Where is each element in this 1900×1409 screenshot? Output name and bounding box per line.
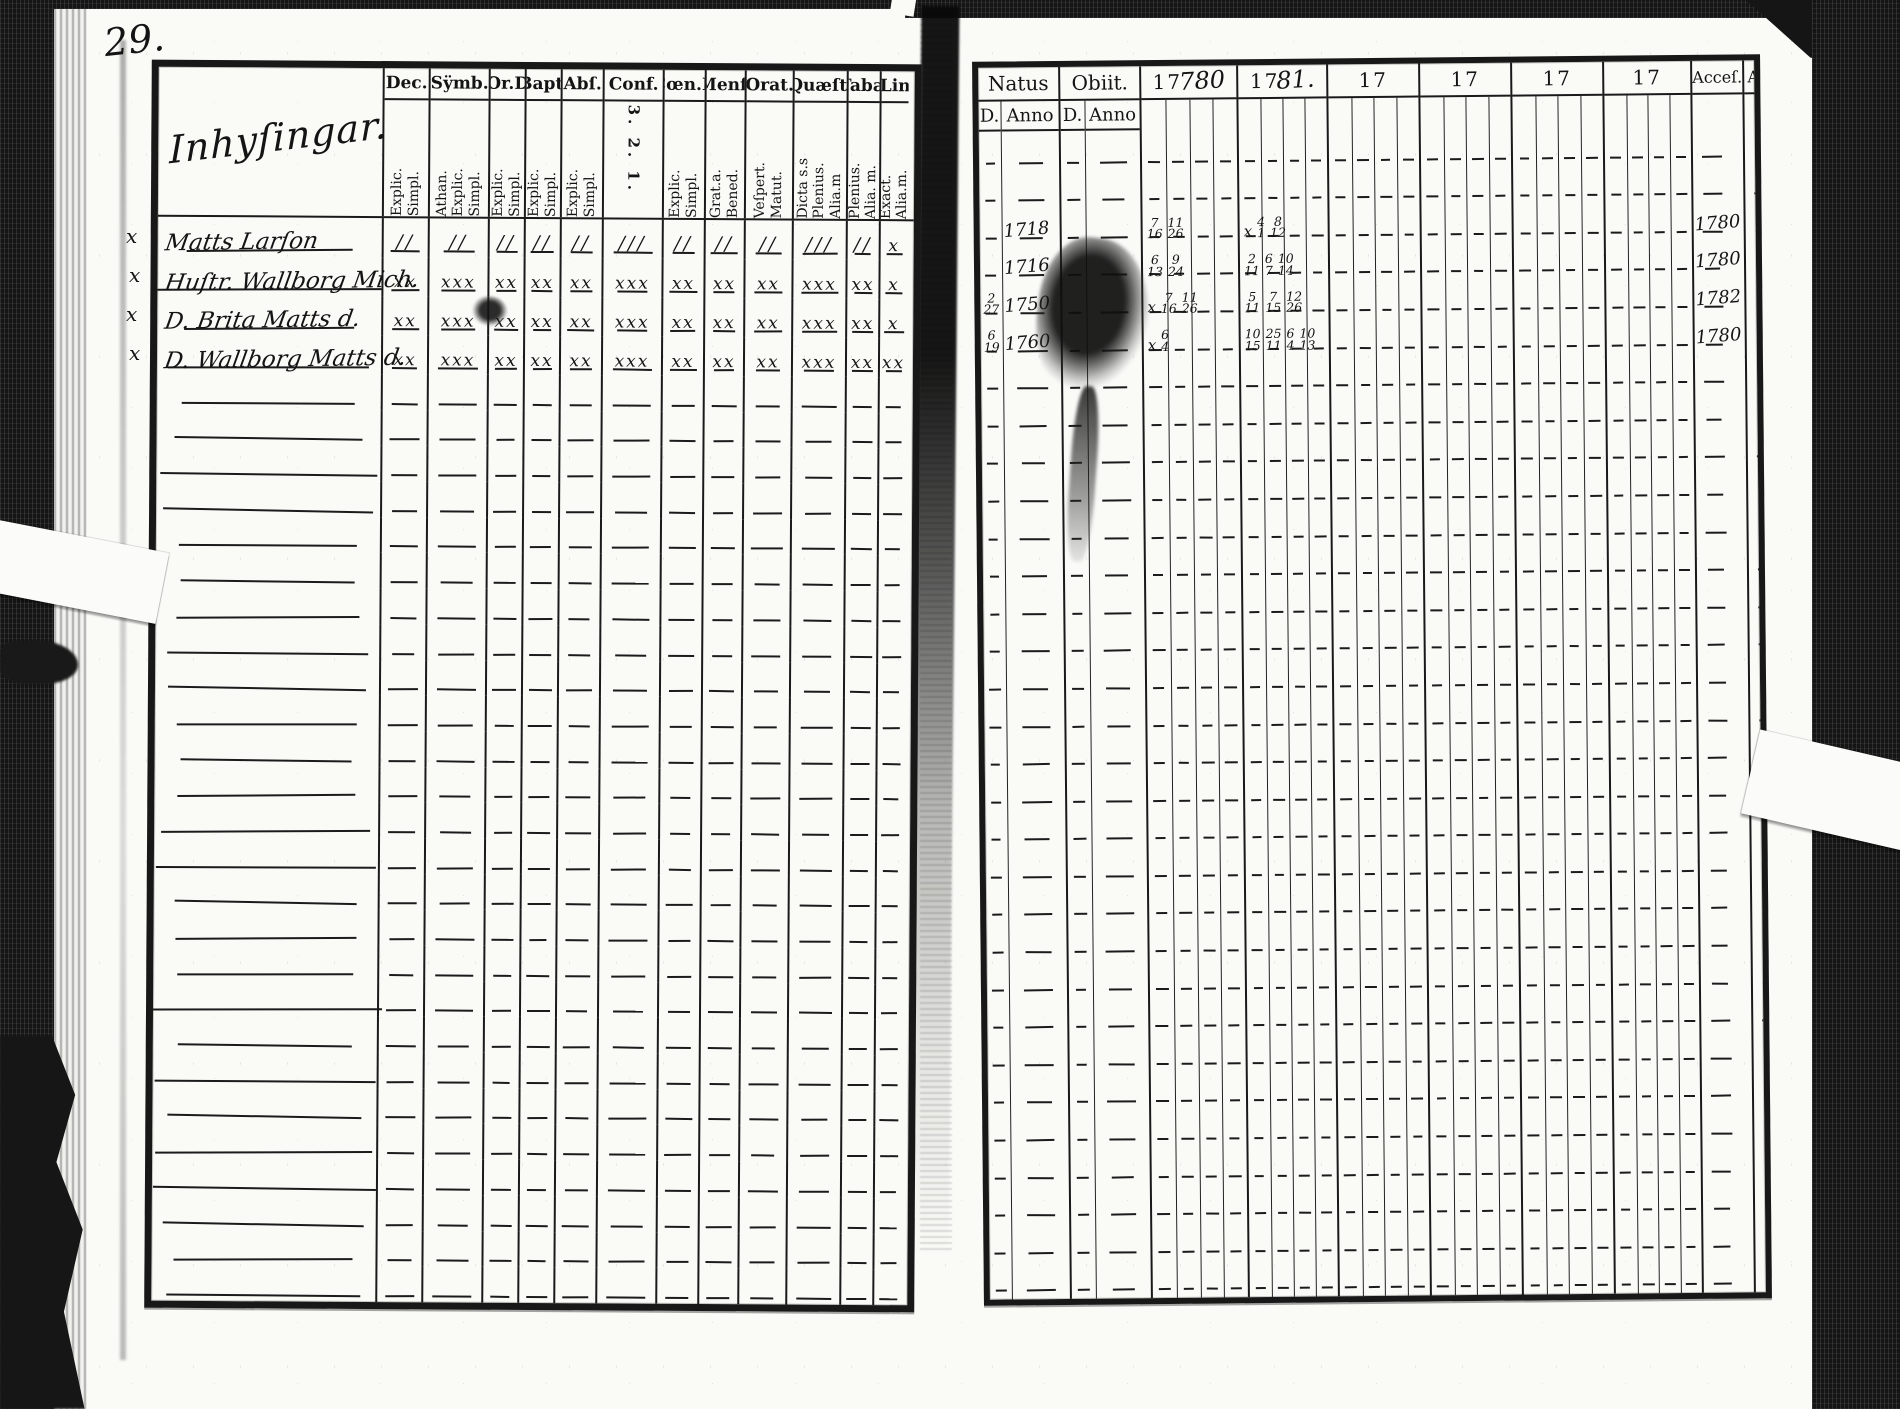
column-label: Or.D — [491, 69, 525, 101]
row-cell — [1332, 504, 1355, 542]
row-cell — [1697, 538, 1735, 576]
mark-cell — [423, 1017, 483, 1053]
mark-cell: ∕∕ — [744, 220, 792, 259]
row-cell — [1310, 580, 1331, 618]
row-cell — [1583, 351, 1605, 389]
printed-dash — [1618, 833, 1627, 835]
printed-dash — [1437, 1248, 1448, 1250]
column-label: Conf. — [605, 69, 663, 101]
printed-dash — [752, 655, 781, 657]
row-cell — [982, 470, 1004, 508]
printed-dash — [1598, 1284, 1608, 1286]
row-cell — [1151, 1107, 1175, 1145]
row-cell — [1495, 728, 1517, 766]
printed-dash — [1253, 1024, 1264, 1026]
printed-dash — [1708, 606, 1726, 608]
printed-dash — [532, 404, 551, 406]
printed-dash — [1564, 157, 1575, 159]
row-cell — [1671, 238, 1692, 276]
mark-cell — [789, 591, 843, 627]
printed-dash — [1639, 757, 1648, 759]
printed-dash — [610, 1082, 646, 1084]
printed-dash — [708, 940, 734, 943]
row-cell — [1650, 238, 1671, 276]
row-cell — [1335, 767, 1358, 805]
mark-cell — [597, 911, 657, 947]
printed-dash — [565, 975, 590, 977]
printed-dash — [1684, 1095, 1695, 1097]
printed-dash — [1340, 723, 1352, 725]
printed-dash — [1637, 607, 1647, 609]
printed-dash — [848, 1084, 869, 1086]
row-cell — [1546, 1179, 1568, 1217]
row-cell — [1474, 879, 1496, 917]
group-year-2: 1781.x4181221167101451171512261015251164… — [1236, 64, 1338, 1297]
row-cell — [1245, 768, 1267, 806]
row-cell — [1753, 989, 1772, 1027]
column-label: Sÿmb. — [431, 68, 489, 100]
mark-cell — [486, 410, 522, 446]
row-cell — [1353, 241, 1375, 279]
printed-dash — [848, 977, 869, 979]
empty-row — [152, 1086, 908, 1126]
printed-dash — [1544, 458, 1556, 460]
row-cell — [1331, 391, 1354, 429]
margin-cross-mark: x — [126, 224, 137, 248]
mark-cell — [699, 1054, 739, 1090]
printed-dash — [1705, 456, 1725, 458]
row-cell — [1677, 802, 1698, 840]
printed-dash — [1520, 157, 1529, 159]
mark-cell — [657, 1054, 699, 1090]
row-cell — [1223, 1031, 1246, 1069]
row-cell — [1151, 1145, 1175, 1183]
column-header-7: Cœn.DExplic.Simpl. — [662, 70, 705, 218]
printed-dash — [390, 545, 418, 547]
row-cell — [1168, 280, 1191, 318]
name-cell — [155, 658, 379, 695]
group-year-6: 17 — [1602, 61, 1702, 1294]
row-cell — [1696, 463, 1734, 501]
row-cell — [1497, 991, 1519, 1029]
printed-dash — [1270, 460, 1281, 462]
row-cell — [1704, 1252, 1742, 1290]
row-cell — [1514, 314, 1537, 352]
row-cell — [1567, 991, 1589, 1029]
printed-dash — [1766, 1095, 1772, 1097]
row-cell — [1584, 389, 1606, 427]
printed-dash — [1025, 1064, 1054, 1066]
mark-cell: xx — [523, 336, 559, 375]
printed-dash — [885, 442, 901, 444]
printed-dash — [705, 1261, 731, 1263]
mark-cell — [381, 374, 427, 410]
printed-dash — [1299, 1137, 1308, 1139]
printed-dash — [1454, 609, 1464, 611]
row-cell — [1540, 540, 1562, 578]
printed-dash — [1293, 610, 1304, 612]
printed-dash — [1290, 197, 1299, 199]
attendance-marks: xxx — [793, 353, 845, 373]
row-cell — [1292, 993, 1313, 1031]
printed-dash — [182, 402, 355, 405]
name-cell — [154, 801, 378, 838]
row-cell — [1561, 389, 1583, 427]
printed-dash — [1664, 1171, 1674, 1173]
printed-dash — [1637, 569, 1646, 571]
printed-dash — [1714, 1208, 1730, 1210]
printed-dash — [668, 761, 693, 763]
row-cell — [984, 733, 1006, 771]
mark-cell — [842, 805, 875, 841]
column-sublabels: Athan.Explic.Simpl. — [430, 100, 489, 216]
printed-dash — [1703, 193, 1722, 195]
printed-dash — [1156, 912, 1167, 914]
header-spacer — [1283, 99, 1304, 129]
row-cell — [1446, 353, 1468, 391]
row-cell — [1584, 464, 1606, 502]
name-cell — [153, 1015, 377, 1052]
printed-dash — [1025, 1026, 1053, 1029]
row-cell — [1382, 917, 1404, 955]
row-cell — [1651, 388, 1672, 426]
attendance-marks: ∕∕ — [664, 233, 704, 255]
mark-cell — [518, 1124, 554, 1160]
attendance-marks: xx — [383, 350, 427, 370]
printed-dash — [1389, 985, 1399, 987]
mark-cell — [875, 877, 904, 913]
printed-dash — [1504, 1097, 1514, 1099]
attendance-marks: ∕∕∕ — [794, 234, 846, 256]
row-cell — [979, 169, 1001, 207]
printed-dash — [1478, 834, 1490, 836]
printed-dash — [1544, 382, 1556, 384]
printed-dash — [1381, 158, 1390, 160]
row-cell — [1680, 1140, 1701, 1178]
printed-dash — [1461, 1286, 1471, 1288]
mark-cell — [377, 1052, 423, 1088]
mark-cell — [597, 946, 657, 982]
printed-dash — [1456, 872, 1468, 874]
row-cell — [1426, 729, 1449, 767]
printed-dash — [1589, 457, 1601, 459]
empty-row — [154, 765, 910, 805]
printed-dash — [565, 903, 590, 905]
printed-dash — [1453, 534, 1464, 536]
printed-dash — [1255, 1137, 1264, 1139]
row-cell — [1493, 540, 1515, 578]
row-cell — [1745, 162, 1772, 200]
printed-dash — [1359, 234, 1369, 236]
row-cell — [979, 132, 1001, 170]
row-cell — [1750, 650, 1772, 688]
row-cell — [1653, 614, 1674, 652]
mark-cell — [483, 1017, 519, 1053]
printed-dash — [436, 1117, 472, 1119]
row-cell — [1753, 951, 1772, 989]
row-cell — [1470, 465, 1492, 503]
row-cell — [1242, 467, 1264, 505]
row-cell — [1291, 843, 1312, 881]
mark-cell — [379, 731, 425, 767]
printed-dash — [390, 439, 420, 441]
printed-dash — [530, 546, 551, 548]
printed-dash — [1411, 1098, 1423, 1100]
printed-dash — [1028, 1252, 1053, 1254]
printed-dash — [1526, 1022, 1538, 1024]
mark-cell — [660, 554, 702, 590]
printed-dash — [1277, 1099, 1287, 1101]
printed-dash — [1344, 1174, 1356, 1176]
row-cell — [1432, 1255, 1455, 1293]
printed-dash — [163, 1221, 364, 1227]
column-sublabel: Explic. — [451, 103, 467, 216]
mark-cell — [843, 698, 876, 734]
mark-cell — [876, 698, 905, 734]
mark-cell — [376, 1123, 422, 1159]
row-cell — [1192, 355, 1215, 393]
torn-paper-notch — [890, 0, 917, 17]
mark-cell — [841, 912, 874, 948]
row-cell — [1288, 542, 1309, 580]
row-cell — [1215, 242, 1238, 280]
row-cell — [1632, 576, 1653, 614]
row-cell — [1560, 314, 1582, 352]
row-cell — [1002, 131, 1059, 169]
printed-dash — [1297, 1061, 1309, 1063]
printed-dash — [1175, 386, 1185, 388]
printed-dash — [1250, 761, 1261, 763]
row-cell — [1169, 355, 1192, 393]
row-cell — [1474, 916, 1496, 954]
row-cell — [1701, 1027, 1739, 1065]
printed-dash — [708, 1011, 733, 1013]
printed-dash — [885, 549, 900, 551]
row-cell — [1476, 1067, 1498, 1105]
printed-dash — [1658, 607, 1669, 609]
printed-dash — [666, 1047, 691, 1049]
mark-cell — [785, 1233, 839, 1269]
row-cell — [1672, 313, 1693, 351]
mark-cell — [739, 912, 787, 948]
row-cell — [982, 507, 1004, 545]
printed-dash — [1474, 458, 1486, 460]
printed-dash — [985, 200, 995, 202]
printed-dash — [1681, 757, 1692, 759]
printed-dash — [1551, 1209, 1563, 1211]
row-cell — [1748, 462, 1772, 500]
printed-dash — [1711, 1133, 1732, 1135]
printed-dash — [1575, 1284, 1587, 1286]
row-cell — [1634, 877, 1655, 915]
row-cell — [979, 207, 1001, 245]
printed-dash — [1159, 1288, 1171, 1290]
row-cell — [1214, 129, 1237, 167]
mark-cell — [558, 411, 600, 447]
printed-dash — [1387, 835, 1397, 837]
printed-dash — [1431, 609, 1443, 611]
mark-cell — [377, 945, 423, 981]
printed-dash — [1759, 606, 1772, 608]
row-cell — [1513, 164, 1536, 202]
row-cell — [1455, 1255, 1477, 1293]
printed-dash — [882, 656, 901, 658]
sub-header: D. — [1060, 101, 1084, 131]
row-cell — [1358, 729, 1380, 767]
printed-dash — [1614, 494, 1623, 496]
mark-cell — [660, 483, 702, 519]
row-cell — [1469, 352, 1491, 390]
printed-dash — [1359, 309, 1370, 311]
mark-cell — [699, 1018, 739, 1054]
fraction-day: 6 — [1151, 255, 1159, 266]
mark-cell — [521, 660, 557, 696]
printed-dash — [1367, 1136, 1379, 1138]
row-cell — [1174, 957, 1197, 995]
row-cell — [1265, 430, 1286, 468]
printed-dash — [1474, 308, 1484, 310]
row-cell — [1292, 956, 1313, 994]
row-cell — [1428, 917, 1451, 955]
left-page-title: Inhyſingar. — [169, 103, 388, 173]
row-cell — [1429, 992, 1452, 1030]
printed-dash — [1319, 1061, 1331, 1063]
header-spacer — [1190, 100, 1213, 130]
printed-dash — [1179, 912, 1192, 914]
mark-cell — [483, 1053, 519, 1089]
mark-cell — [558, 554, 600, 590]
printed-dash — [1547, 758, 1559, 760]
row-cell — [1265, 467, 1286, 505]
printed-dash — [1434, 910, 1445, 912]
attendance-marks: xxx — [429, 350, 487, 370]
name-cell — [156, 408, 380, 445]
mark-cell — [875, 805, 904, 841]
row-cell — [1745, 199, 1772, 237]
row-cell — [1628, 163, 1649, 201]
printed-dash — [1452, 383, 1462, 385]
mark-cell — [376, 1159, 422, 1195]
row-cell — [1315, 1068, 1336, 1106]
printed-dash — [1113, 1289, 1135, 1291]
row-cell — [1068, 845, 1092, 883]
row-cell — [1177, 1182, 1200, 1220]
header-spacer — [1328, 98, 1351, 128]
row-cell — [1544, 953, 1566, 991]
printed-dash — [1022, 801, 1052, 804]
printed-dash — [1382, 346, 1393, 348]
row-cell — [1315, 1106, 1336, 1144]
printed-dash — [1020, 425, 1047, 428]
row-cell — [1169, 393, 1192, 431]
row-cell — [1338, 1068, 1361, 1106]
printed-dash — [1153, 687, 1164, 689]
printed-dash — [1474, 233, 1484, 235]
printed-dash — [1586, 156, 1598, 158]
mark-cell — [698, 1161, 738, 1197]
printed-dash — [563, 1260, 588, 1262]
row-cell — [1701, 952, 1739, 990]
mark-cell: ∕∕ — [382, 218, 428, 257]
printed-dash — [1483, 1285, 1495, 1287]
printed-dash — [1665, 1208, 1675, 1210]
row-cell — [1066, 657, 1090, 695]
printed-dash — [1619, 1058, 1630, 1060]
row-cell — [1452, 954, 1474, 992]
mark-cell: xxx — [601, 258, 661, 297]
printed-dash — [711, 833, 730, 835]
printed-dash — [666, 1261, 688, 1263]
printed-dash — [568, 725, 589, 727]
row-cell — [1216, 355, 1239, 393]
printed-dash — [532, 511, 551, 513]
row-cell — [1330, 241, 1353, 279]
row-cell: 1780 — [1694, 312, 1732, 350]
printed-dash — [1220, 235, 1233, 237]
mark-cell — [702, 447, 742, 483]
printed-dash — [440, 796, 471, 798]
printed-dash — [1588, 307, 1599, 309]
mark-cell — [698, 1197, 738, 1233]
printed-dash — [1360, 347, 1371, 349]
row-cell — [1290, 768, 1311, 806]
printed-dash — [1155, 875, 1167, 877]
printed-dash — [989, 538, 998, 540]
row-cell — [1678, 914, 1699, 952]
row-cell — [1562, 502, 1584, 540]
printed-dash — [1290, 234, 1300, 236]
row-cell — [1658, 1103, 1679, 1141]
printed-dash — [1297, 949, 1307, 951]
row-cell — [1585, 502, 1607, 540]
printed-dash — [1659, 720, 1670, 722]
printed-dash — [1022, 463, 1045, 465]
printed-dash — [1592, 608, 1601, 610]
row-cell — [1583, 314, 1605, 352]
row-cell — [1609, 614, 1631, 652]
mark-cell — [658, 733, 700, 769]
printed-dash — [1594, 833, 1604, 835]
row-cell — [1380, 692, 1402, 730]
printed-dash — [563, 1153, 589, 1155]
printed-dash — [1764, 944, 1772, 946]
row-cell — [1449, 616, 1471, 654]
mark-cell — [655, 1268, 697, 1304]
mark-cell — [599, 697, 659, 733]
printed-dash — [1654, 193, 1665, 195]
printed-dash — [1108, 1025, 1134, 1027]
mark-cell — [657, 982, 699, 1018]
row-cell — [1680, 1177, 1701, 1215]
printed-dash — [1173, 311, 1186, 313]
printed-dash — [1618, 908, 1628, 910]
mark-cell — [424, 838, 484, 874]
printed-dash — [1179, 799, 1190, 801]
name-cell — [156, 480, 380, 517]
printed-dash — [436, 1188, 470, 1190]
printed-dash — [989, 688, 1001, 690]
printed-dash — [1481, 1060, 1492, 1062]
mark-cell — [840, 1162, 873, 1198]
printed-dash — [609, 1261, 645, 1263]
printed-dash — [992, 989, 1004, 991]
left-page-table: Inhyſingar. Dec.Explic.Simpl.Sÿmb.Athan.… — [144, 60, 922, 1313]
attendance-marks: xx — [847, 314, 878, 334]
printed-dash — [1382, 309, 1391, 311]
mark-cell — [740, 805, 788, 841]
row-cell — [1748, 425, 1772, 463]
mark-cell — [426, 481, 486, 517]
